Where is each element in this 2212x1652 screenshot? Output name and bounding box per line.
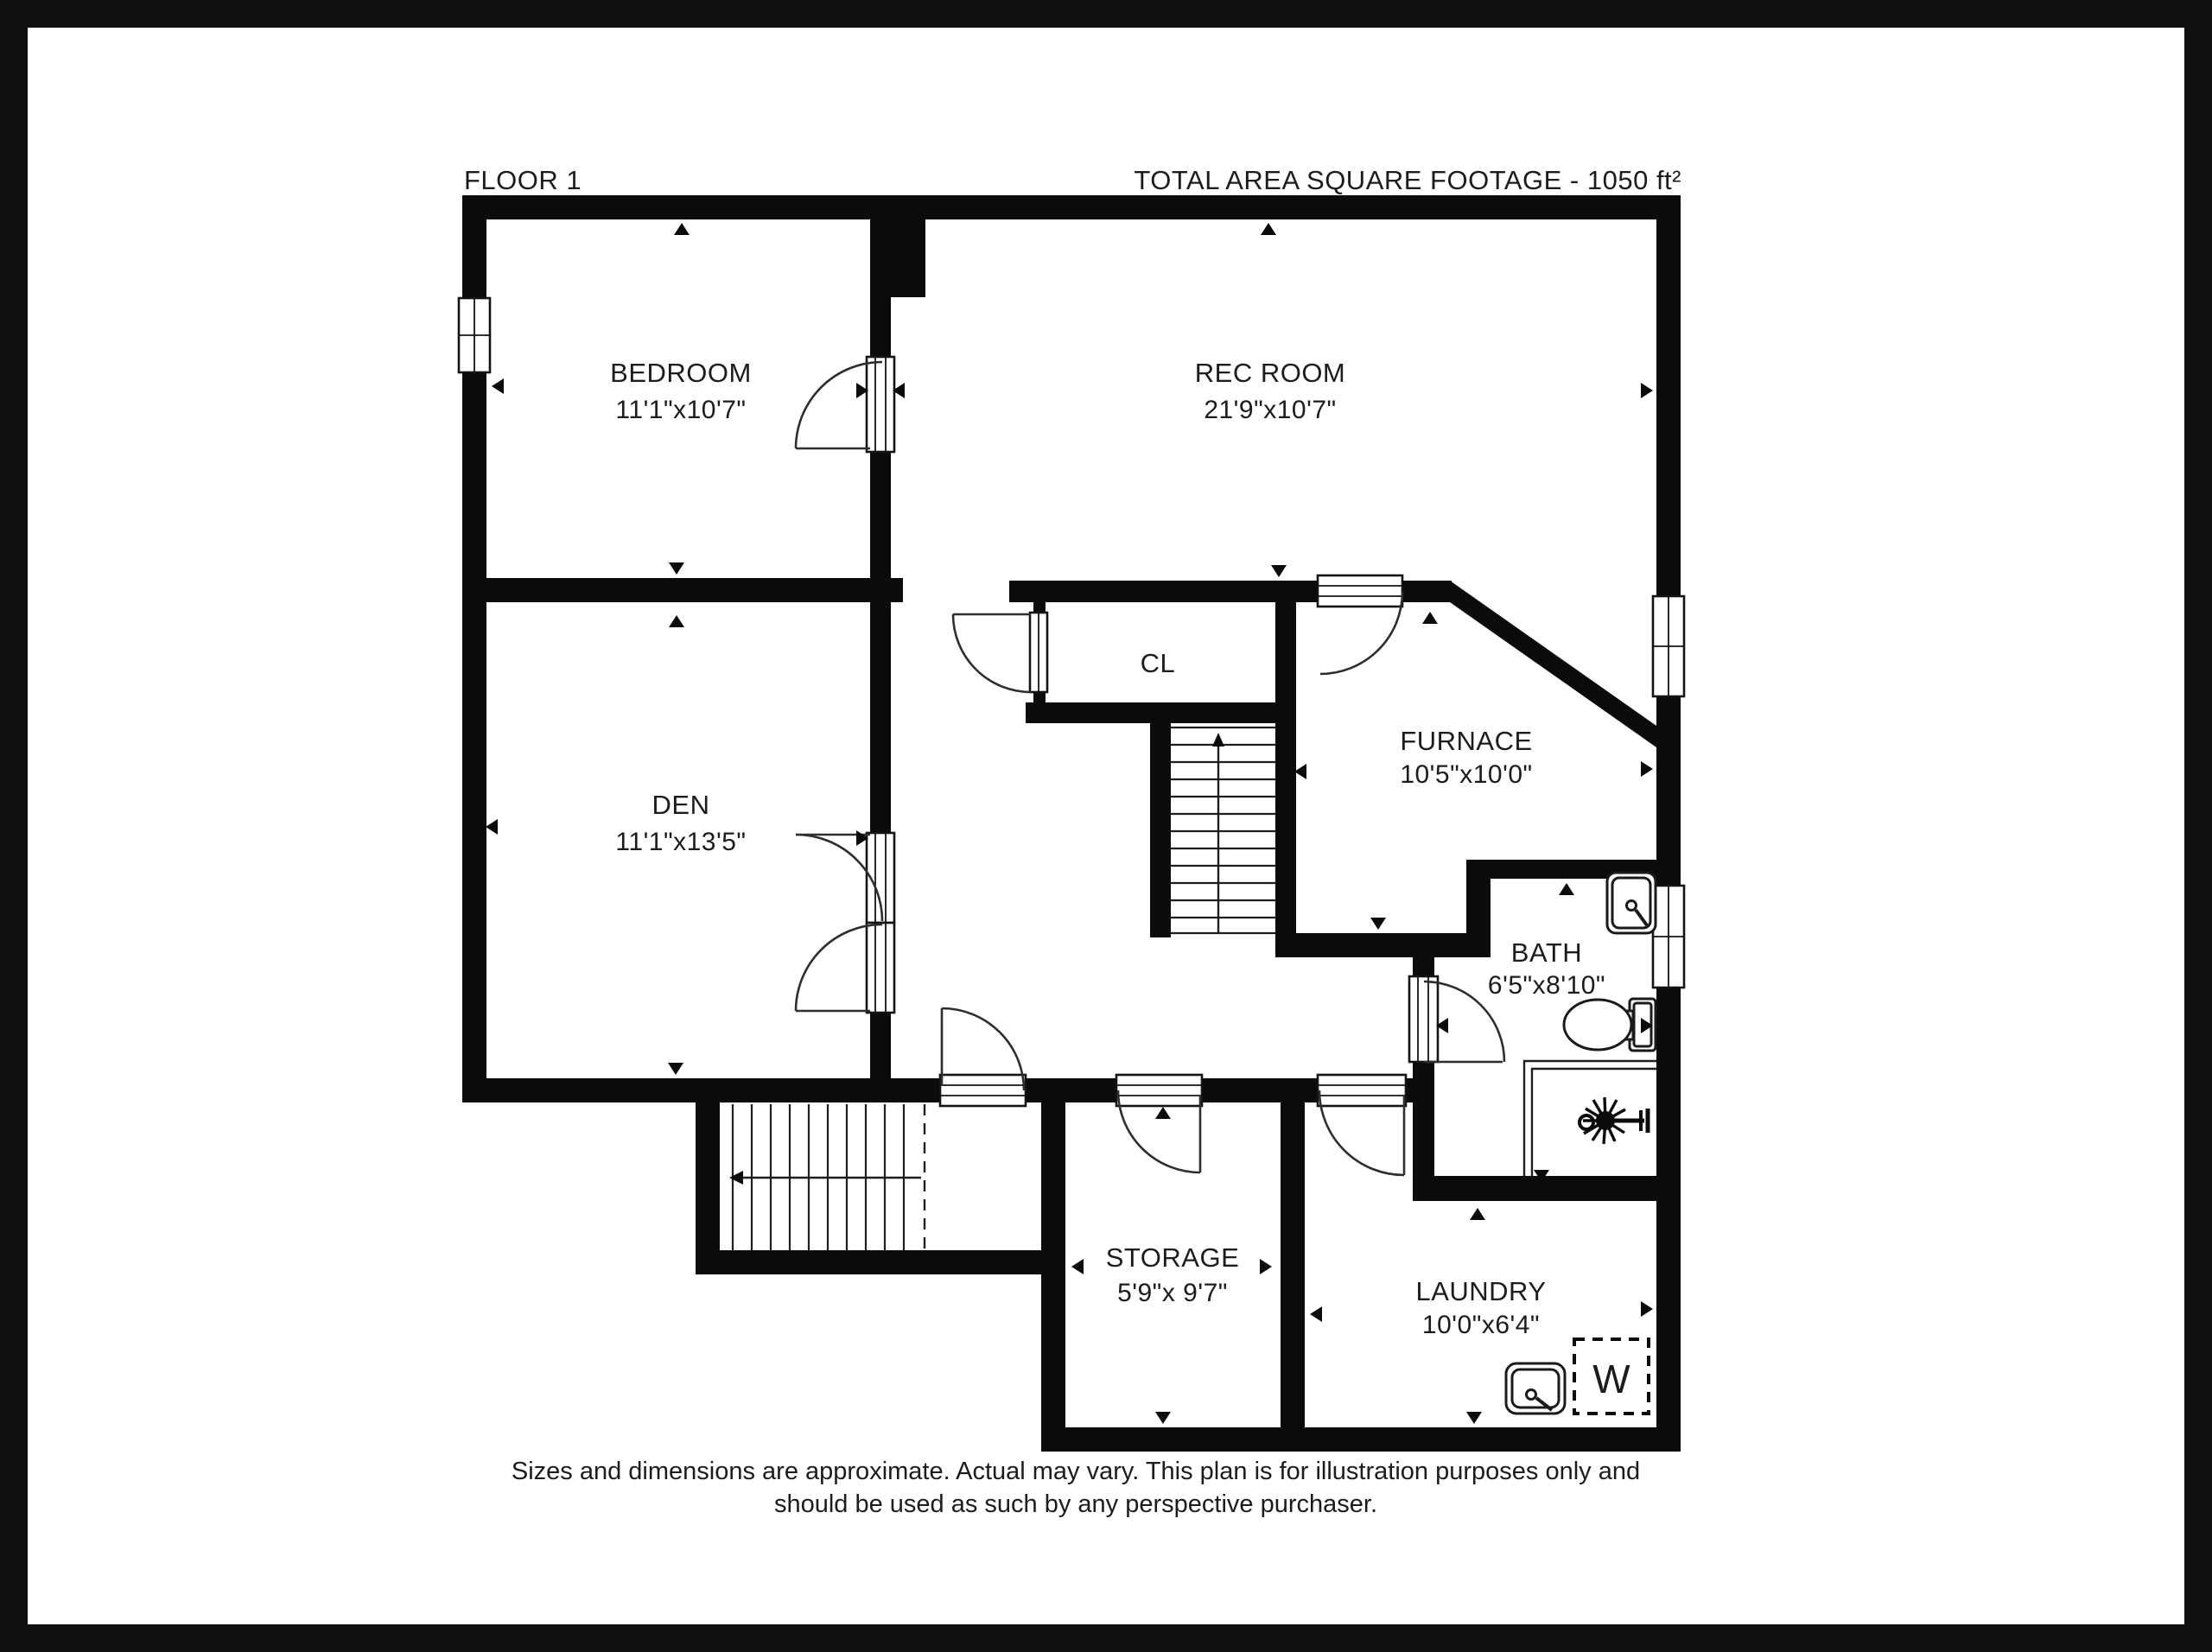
wall-stair-right — [1275, 581, 1296, 957]
wall-storage-laundry-divider — [1281, 1102, 1305, 1427]
label-storage-dims: 5'9"x 9'7" — [1117, 1279, 1228, 1307]
wall-stair-left — [1150, 723, 1171, 937]
label-storage: STORAGE — [1106, 1242, 1240, 1273]
wall-bottom-seg3 — [1200, 1078, 1319, 1102]
floorplan-page: FLOOR 1 TOTAL AREA SQUARE FOOTAGE - 1050… — [0, 0, 2212, 1652]
window-bath-right — [1653, 886, 1684, 988]
wall-furnace-top — [1402, 581, 1452, 602]
label-den: DEN — [652, 790, 710, 820]
label-bedroom: BEDROOM — [610, 358, 752, 388]
wall-bottom-seg1 — [462, 1078, 942, 1102]
floorplan-drawing: FLOOR 1 TOTAL AREA SQUARE FOOTAGE - 1050… — [0, 0, 2212, 1652]
label-furnace-dims: 10'5"x10'0" — [1400, 760, 1532, 789]
washer-label: W — [1592, 1357, 1630, 1401]
wall-bath-bottom — [1413, 1176, 1681, 1201]
wall-right — [1656, 195, 1681, 1452]
wall-bottom-lower — [1041, 1427, 1681, 1452]
laundry-sink-icon — [1506, 1363, 1565, 1414]
label-recroom-dims: 21'9"x10'7" — [1204, 396, 1336, 424]
label-laundry-dims: 10'0"x6'4" — [1422, 1311, 1540, 1339]
wall-chimney-block — [870, 195, 925, 297]
disclaimer-line2: should be used as such by any perspectiv… — [774, 1490, 1377, 1518]
label-laundry: LAUNDRY — [1415, 1276, 1546, 1306]
wall-bumpout-bottom — [696, 1250, 1065, 1274]
label-furnace: FURNACE — [1400, 726, 1532, 756]
total-area-label: TOTAL AREA SQUARE FOOTAGE - 1050 ft² — [1134, 165, 1681, 195]
wall-top — [462, 195, 1681, 219]
wall-closet-top — [1009, 581, 1318, 602]
wall-storage-left — [1041, 1102, 1065, 1452]
washer-icon: W — [1574, 1339, 1649, 1414]
wall-interior-middle — [870, 453, 891, 833]
label-den-dims: 11'1"x13'5" — [615, 828, 746, 856]
label-bedroom-dims: 11'1"x10'7" — [615, 396, 746, 424]
wall-bottom-seg4 — [1402, 1078, 1434, 1102]
label-bath: BATH — [1511, 937, 1582, 968]
label-bath-dims: 6'5"x8'10" — [1488, 971, 1605, 1000]
label-recroom: REC ROOM — [1195, 358, 1346, 388]
floor-title: FLOOR 1 — [464, 165, 582, 195]
window-bedroom-left — [459, 298, 490, 372]
wall-bottom-seg2 — [1024, 1078, 1118, 1102]
label-closet: CL — [1141, 648, 1176, 678]
wall-furnace-bottom — [1275, 933, 1491, 957]
wall-bumpout-left — [696, 1102, 720, 1274]
disclaimer-line1: Sizes and dimensions are approximate. Ac… — [512, 1458, 1640, 1485]
wall-bedroom-den-divider — [462, 578, 903, 602]
page-background — [28, 28, 2184, 1624]
bath-sink-icon — [1607, 873, 1656, 933]
window-recroom-right — [1653, 596, 1684, 696]
wall-closet-bottom — [1026, 702, 1293, 723]
